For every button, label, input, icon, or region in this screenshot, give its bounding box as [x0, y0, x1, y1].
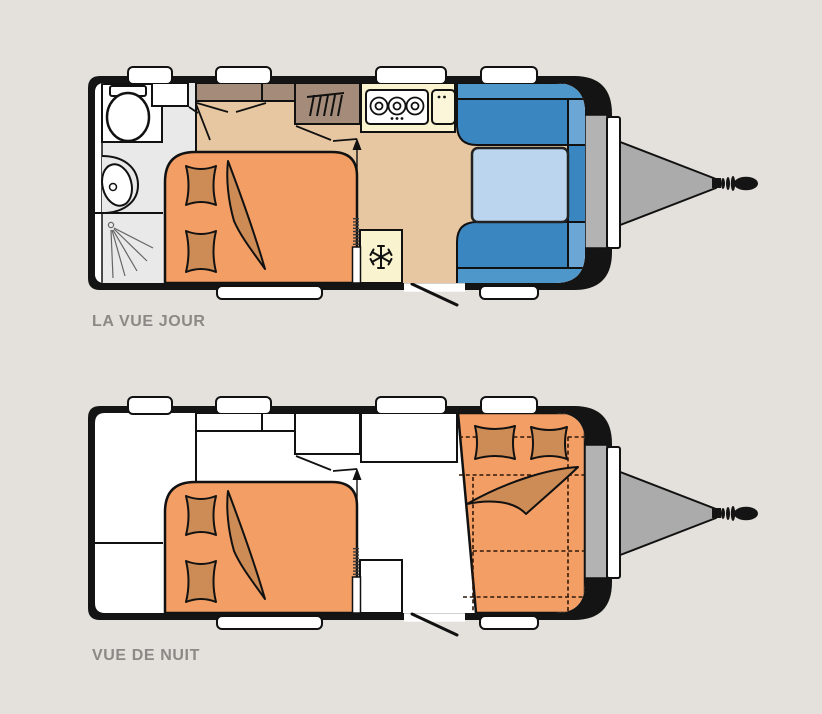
floorplan-day [88, 67, 758, 305]
day-view-label: LA VUE JOUR [92, 313, 206, 331]
night-view-label: VUE DE NUIT [92, 647, 200, 665]
caravan-floorplans [0, 0, 822, 714]
wardrobe-cabinet [196, 83, 262, 101]
pillow [475, 426, 515, 459]
bathroom-cabinet [152, 83, 188, 106]
dinette-table [472, 148, 568, 222]
toilet [107, 93, 149, 141]
rear-window-strip [95, 83, 102, 283]
basin-drain [110, 184, 117, 191]
hob-knobs [391, 117, 404, 120]
heater-unit [295, 83, 360, 124]
wardrobe-cabinet [262, 83, 295, 101]
dinette-seat [457, 99, 568, 145]
double-bed [165, 152, 357, 283]
floorplan-page: LA VUE JOUR VUE DE NUIT [0, 0, 822, 714]
double-bed [165, 482, 357, 613]
floorplan-night [88, 397, 758, 635]
pillow [531, 427, 567, 459]
kitchen-sink [432, 90, 455, 124]
converted-dinette-bed [458, 413, 585, 613]
dinette-seat [457, 222, 568, 268]
